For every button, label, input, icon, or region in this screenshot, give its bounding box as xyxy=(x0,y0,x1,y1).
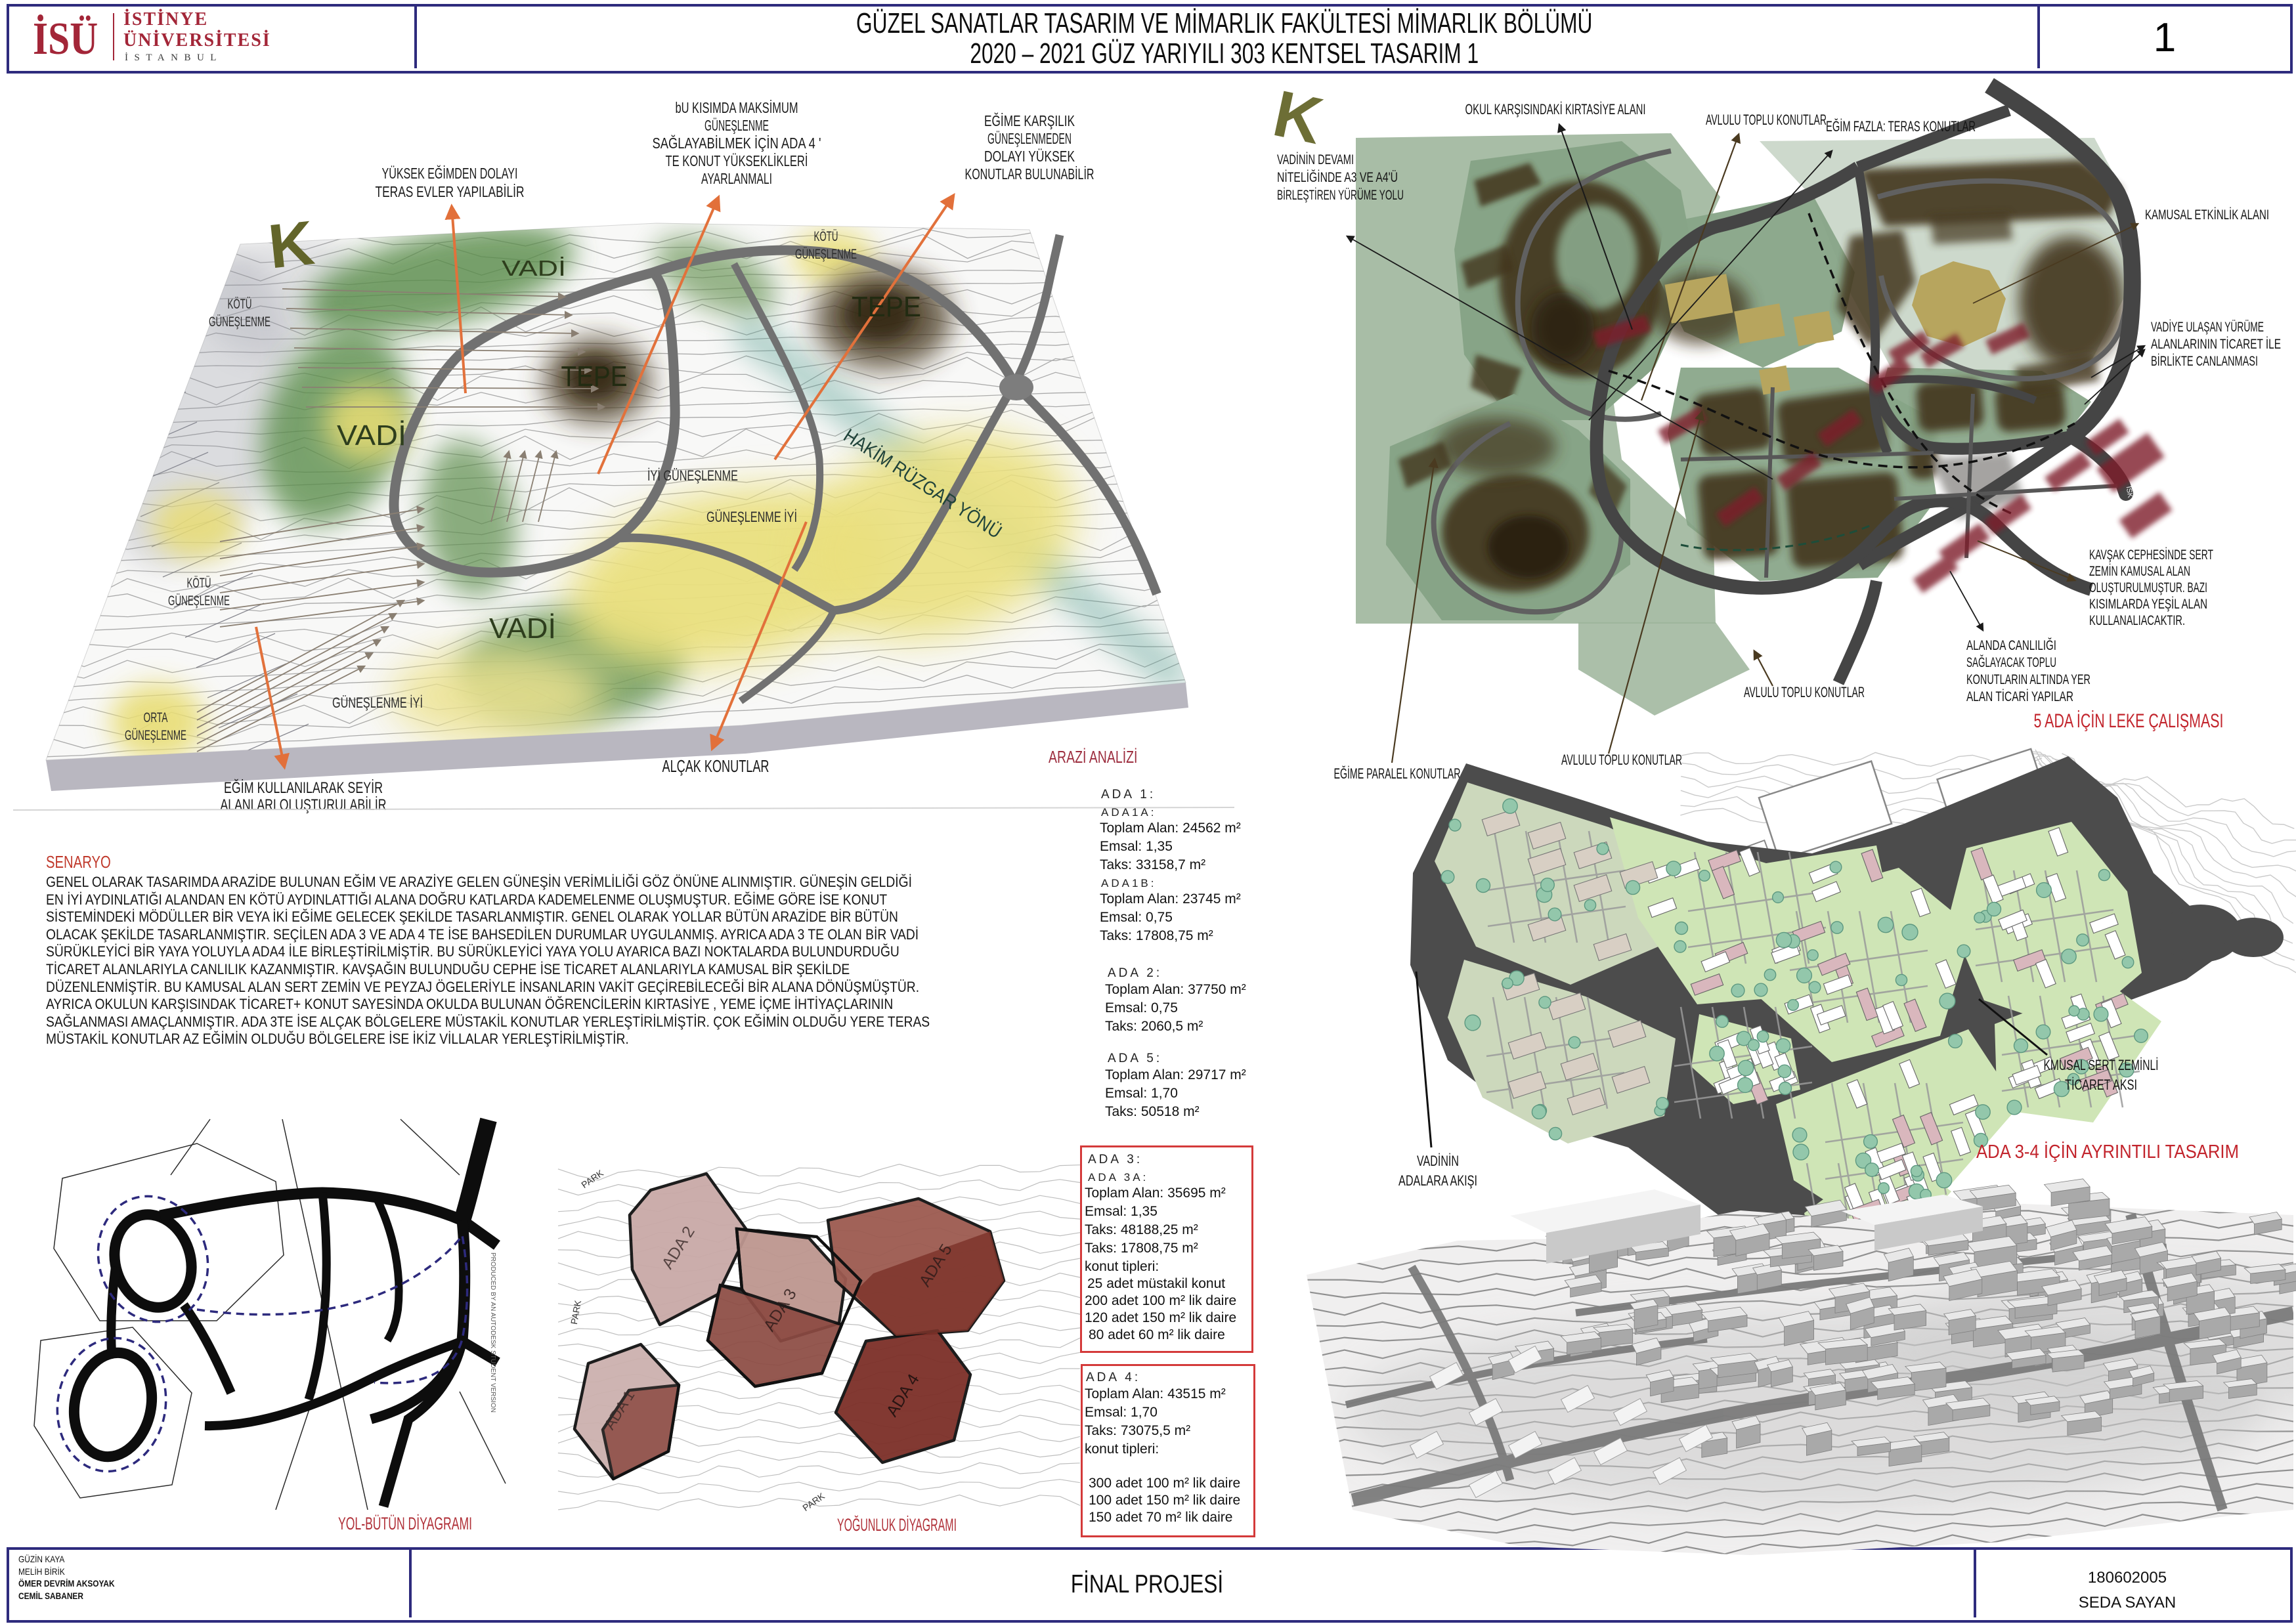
svg-text:ALANLARININ TİCARET İLE: ALANLARININ TİCARET İLE xyxy=(2151,337,2281,352)
svg-text:ADA 3-4 İÇİN AYRINTILI TASARIM: ADA 3-4 İÇİN AYRINTILI TASARIM xyxy=(1976,1141,2239,1163)
svg-text:GÜNEŞLENME: GÜNEŞLENME xyxy=(168,593,230,609)
svg-text:K: K xyxy=(1267,76,1329,158)
svg-text:GÜNEŞLENME: GÜNEŞLENME xyxy=(209,314,271,330)
svg-text:KONUTLAR BULUNABİLİR: KONUTLAR BULUNABİLİR xyxy=(965,165,1094,182)
svg-text:EĞİME KARŞILIK: EĞİME KARŞILIK xyxy=(984,112,1075,129)
svg-text:KMUSAL SERT ZEMİNLİ: KMUSAL SERT ZEMİNLİ xyxy=(2044,1057,2159,1073)
svg-text:SAĞLAYACAK TOPLU: SAĞLAYACAK TOPLU xyxy=(1966,655,2056,670)
svg-text:KÖTÜ: KÖTÜ xyxy=(228,297,252,312)
svg-text:TEPE: TEPE xyxy=(561,360,628,393)
svg-text:PARK: PARK xyxy=(800,1490,827,1513)
svg-text:PRODUCED BY AN AUTODESK STUDEN: PRODUCED BY AN AUTODESK STUDENT VERSION xyxy=(489,1252,496,1413)
svg-text:ALANDA CANLILIĞI: ALANDA CANLILIĞI xyxy=(1966,638,2056,653)
svg-text:ALÇAK KONUTLAR: ALÇAK KONUTLAR xyxy=(662,756,769,776)
svg-text:GÜNEŞLENME İYİ: GÜNEŞLENME İYİ xyxy=(706,509,797,525)
svg-text:KONUTLARIN ALTINDA YER: KONUTLARIN ALTINDA YER xyxy=(1966,672,2090,687)
svg-text:VADİNİN DEVAMI: VADİNİN DEVAMI xyxy=(1277,152,1354,167)
svg-text:YÜKSEK EĞİMDEN DOLAYI: YÜKSEK EĞİMDEN DOLAYI xyxy=(382,165,518,182)
svg-text:GÜNEŞLENMEDEN: GÜNEŞLENMEDEN xyxy=(987,130,1072,147)
svg-text:KULLANALIACAKTIR.: KULLANALIACAKTIR. xyxy=(2089,613,2185,628)
svg-text:KÖTÜ: KÖTÜ xyxy=(187,576,211,591)
svg-text:VADİ: VADİ xyxy=(489,612,556,645)
svg-text:OKUL KARŞISINDAKİ KIRTASİYE AL: OKUL KARŞISINDAKİ KIRTASİYE ALANI xyxy=(1465,101,1646,118)
svg-text:GÜNEŞLENME: GÜNEŞLENME xyxy=(125,728,186,743)
svg-text:AYARLANMALI: AYARLANMALI xyxy=(701,170,772,187)
svg-text:EĞİM KULLANILARAK SEYİR: EĞİM KULLANILARAK SEYİR xyxy=(224,779,383,797)
svg-text:ZEMİN KAMUSAL ALAN: ZEMİN KAMUSAL ALAN xyxy=(2089,564,2190,579)
svg-text:VADİ: VADİ xyxy=(337,419,406,452)
svg-text:VADİ: VADİ xyxy=(502,256,566,280)
svg-text:ORTA: ORTA xyxy=(144,710,168,725)
svg-text:AVLULU TOPLU KONUTLAR: AVLULU TOPLU KONUTLAR xyxy=(1744,684,1865,700)
svg-text:GÜNEŞLENME: GÜNEŞLENME xyxy=(795,247,857,262)
svg-text:VADİYE ULAŞAN YÜRÜME: VADİYE ULAŞAN YÜRÜME xyxy=(2151,320,2264,335)
svg-text:KISIMLARDA YEŞİL ALAN: KISIMLARDA YEŞİL ALAN xyxy=(2089,597,2207,612)
svg-text:K: K xyxy=(265,208,317,282)
svg-text:AVLULU TOPLU KONUTLAR: AVLULU TOPLU KONUTLAR xyxy=(1706,112,1827,128)
svg-text:ALANLARI OLUŞTURULABİLİR: ALANLARI OLUŞTURULABİLİR xyxy=(221,796,387,814)
svg-text:KAMUSAL ETKİNLİK ALANI: KAMUSAL ETKİNLİK ALANI xyxy=(2145,207,2269,223)
svg-text:DOLAYI YÜKSEK: DOLAYI YÜKSEK xyxy=(984,148,1075,165)
svg-text:VADİNİN: VADİNİN xyxy=(1417,1153,1459,1169)
svg-text:TERAS EVLER YAPILABİLİR: TERAS EVLER YAPILABİLİR xyxy=(376,183,525,200)
svg-text:TEPE: TEPE xyxy=(852,291,921,323)
svg-text:KÖTÜ: KÖTÜ xyxy=(814,229,838,244)
svg-text:EĞİME PARALEL KONUTLAR: EĞİME PARALEL KONUTLAR xyxy=(1334,765,1461,782)
svg-text:İYİ GÜNEŞLENME: İYİ GÜNEŞLENME xyxy=(647,467,738,484)
svg-text:TE KONUT YÜKSEKLİKLERİ: TE KONUT YÜKSEKLİKLERİ xyxy=(666,152,808,169)
svg-text:YOL-BÜTÜN DİYAGRAMI: YOL-BÜTÜN DİYAGRAMI xyxy=(338,1513,472,1533)
svg-text:bU KISIMDA MAKSİMUM: bU KISIMDA MAKSİMUM xyxy=(676,99,798,116)
svg-text:EĞİM FAZLA: TERAS KONUTLAR: EĞİM FAZLA: TERAS KONUTLAR xyxy=(1826,118,1976,135)
svg-text:AVLULU TOPLU KONUTLAR: AVLULU TOPLU KONUTLAR xyxy=(1561,752,1682,768)
svg-text:BİRLİKTE CANLANMASI: BİRLİKTE CANLANMASI xyxy=(2151,354,2258,369)
svg-text:BİRLEŞTİREN YÜRÜME YOLU: BİRLEŞTİREN YÜRÜME YOLU xyxy=(1277,188,1404,203)
svg-text:TİCARET AKSI: TİCARET AKSI xyxy=(2065,1077,2137,1093)
svg-text:KAVŞAK CEPHESİNDE SERT: KAVŞAK CEPHESİNDE SERT xyxy=(2089,547,2213,563)
svg-text:NİTELİĞİNDE A3 VE A4'Ü: NİTELİĞİNDE A3 VE A4'Ü xyxy=(1277,170,1398,185)
svg-text:5 ADA İÇİN LEKE ÇALIŞMASI: 5 ADA İÇİN LEKE ÇALIŞMASI xyxy=(2034,710,2224,732)
svg-text:OLUŞTURULMUŞTUR. BAZI: OLUŞTURULMUŞTUR. BAZI xyxy=(2089,580,2207,595)
svg-text:SAĞLAYABİLMEK İÇİN ADA 4 ': SAĞLAYABİLMEK İÇİN ADA 4 ' xyxy=(653,135,821,152)
svg-text:ADALARA AKIŞI: ADALARA AKIŞI xyxy=(1398,1172,1477,1189)
svg-text:GÜNEŞLENME İYİ: GÜNEŞLENME İYİ xyxy=(332,694,423,711)
svg-text:GÜNEŞLENME: GÜNEŞLENME xyxy=(704,117,769,134)
svg-text:YOĞUNLUK DİYAGRAMI: YOĞUNLUK DİYAGRAMI xyxy=(837,1514,957,1535)
svg-text:PARK: PARK xyxy=(569,1299,583,1325)
svg-text:ALAN TİCARİ YAPILAR: ALAN TİCARİ YAPILAR xyxy=(1966,689,2073,704)
